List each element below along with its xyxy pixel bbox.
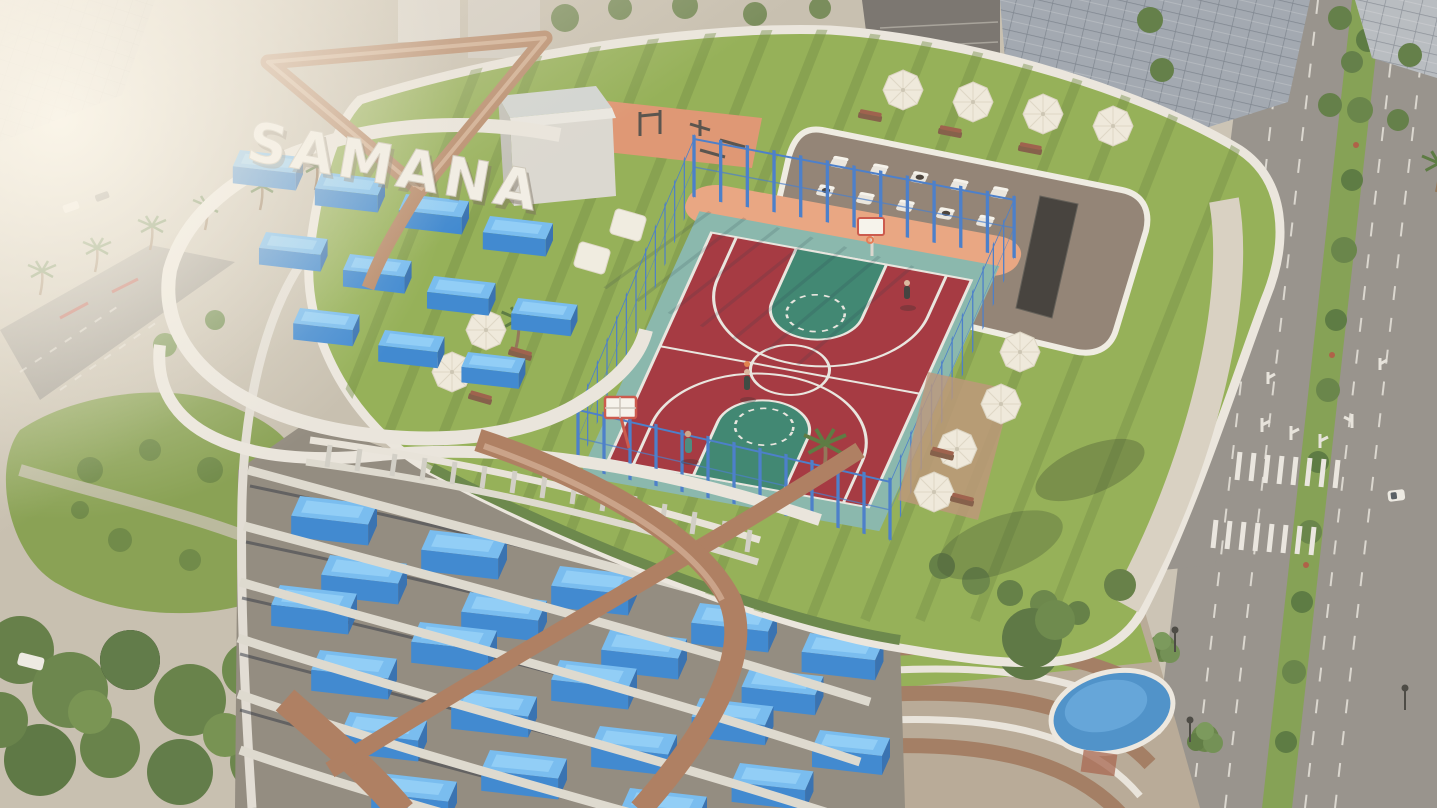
aerial-render: SAMANA SAMANA — [0, 0, 1437, 808]
render-canvas: SAMANA SAMANA — [0, 0, 1437, 808]
sun-glare — [0, 0, 1437, 808]
